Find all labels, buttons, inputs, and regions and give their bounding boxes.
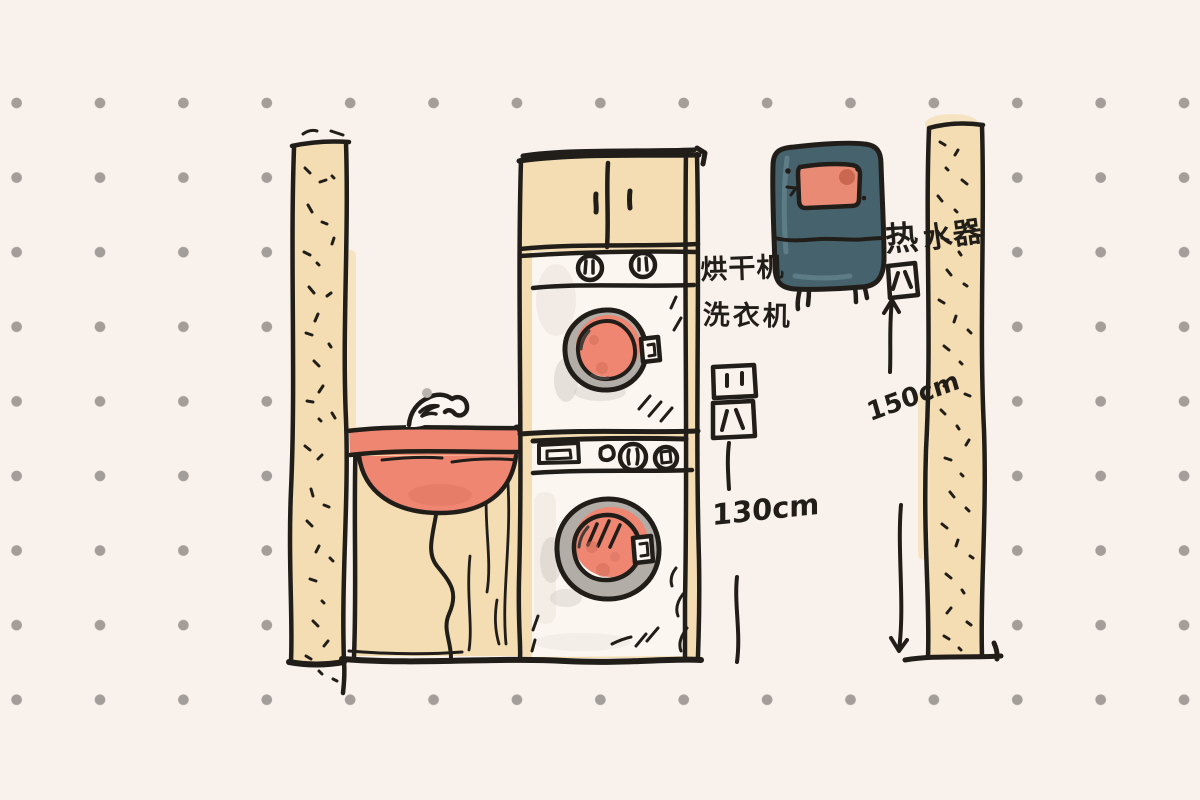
laundry-room-sketch bbox=[0, 0, 1200, 800]
dryer-knob bbox=[631, 253, 655, 277]
sink-unit bbox=[347, 388, 535, 661]
floor-line bbox=[342, 659, 701, 662]
washer-knob bbox=[620, 444, 646, 470]
water-heater-label-left: 热 bbox=[884, 220, 919, 259]
dryer-door-handle bbox=[641, 337, 660, 362]
washer-door-handle bbox=[633, 536, 653, 563]
dryer-label: 烘干机 bbox=[700, 253, 785, 286]
washer-label: 洗衣机 bbox=[702, 301, 793, 332]
dryer-knob bbox=[578, 256, 602, 280]
washer-dryer-tower bbox=[519, 148, 705, 658]
left-wall-column bbox=[289, 130, 356, 693]
sketch-page: 烘干机 洗衣机 热 水器 130cm 150cm bbox=[0, 0, 1200, 800]
water-heater bbox=[773, 143, 884, 309]
